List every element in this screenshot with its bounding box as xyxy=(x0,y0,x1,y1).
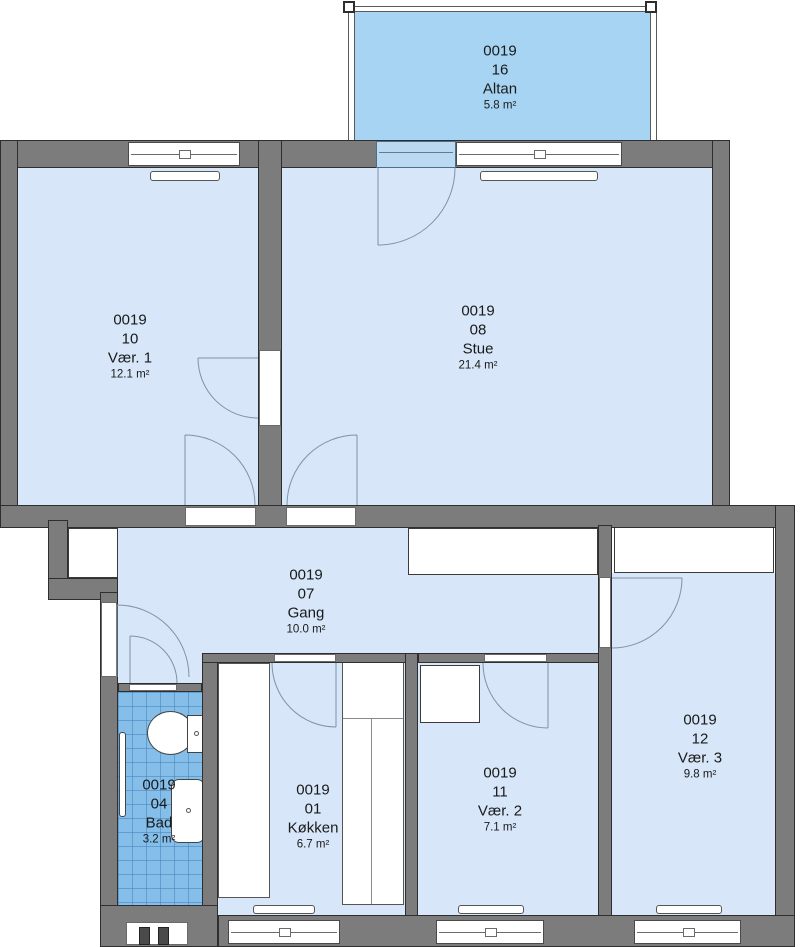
room-name: Vær. 2 xyxy=(478,802,522,821)
wall xyxy=(712,140,730,528)
balcony-railing xyxy=(350,6,655,12)
towel-rail xyxy=(119,732,126,817)
room-area: 21.4 m² xyxy=(459,359,498,373)
room-number: 04 xyxy=(142,795,175,814)
room-unit: 0019 xyxy=(459,303,498,322)
wall xyxy=(0,505,795,528)
room-label-gang: 0019 07 Gang 10.0 m² xyxy=(287,567,326,638)
wardrobe xyxy=(420,665,480,723)
room-area: 5.8 m² xyxy=(483,99,517,113)
toilet-button xyxy=(194,731,199,736)
door-opening-vaer1-gang xyxy=(185,507,256,526)
room-unit: 0019 xyxy=(478,765,522,784)
room-label-vaer3: 0019 12 Vær. 3 9.8 m² xyxy=(678,712,722,783)
wardrobe xyxy=(614,527,774,573)
door-opening-vaer2 xyxy=(484,654,547,662)
door-opening-bad xyxy=(129,684,177,691)
room-gang-floor xyxy=(408,575,598,655)
room-number: 08 xyxy=(459,321,498,340)
window-vaer3 xyxy=(634,920,741,944)
door-opening-vaer1-stue xyxy=(259,350,281,426)
room-area: 7.1 m² xyxy=(478,821,522,835)
room-label-koekken: 0019 01 Køkken 6.7 m² xyxy=(288,782,339,853)
radiator xyxy=(656,905,722,914)
entry-door-opening xyxy=(101,602,117,677)
shaft-post xyxy=(158,927,169,945)
room-name: Køkken xyxy=(288,819,339,838)
room-name: Bad xyxy=(142,814,175,833)
room-unit: 0019 xyxy=(288,782,339,801)
wall xyxy=(405,653,418,920)
room-label-bad: 0019 04 Bad 3.2 m² xyxy=(142,777,175,848)
balcony-railing xyxy=(650,6,657,142)
room-name: Gang xyxy=(287,604,326,623)
window-vaer1 xyxy=(128,142,240,166)
room-area: 9.8 m² xyxy=(678,768,722,782)
window-koekken xyxy=(228,920,340,944)
room-gang-floor xyxy=(118,528,408,655)
room-number: 01 xyxy=(288,800,339,819)
counter-divider xyxy=(371,718,372,904)
sink-drain xyxy=(186,808,191,813)
room-number: 07 xyxy=(287,585,326,604)
room-name: Stue xyxy=(459,340,498,359)
balcony-door xyxy=(376,141,456,168)
balcony-post xyxy=(645,1,657,13)
wardrobe xyxy=(408,528,598,575)
balcony-post xyxy=(343,1,355,13)
room-label-vaer2: 0019 11 Vær. 2 7.1 m² xyxy=(478,765,522,836)
wall xyxy=(202,655,218,920)
counter-divider xyxy=(343,718,403,719)
radiator xyxy=(480,171,598,181)
sink xyxy=(171,779,205,843)
balcony-railing xyxy=(348,6,355,142)
wall xyxy=(0,140,18,528)
room-area: 3.2 m² xyxy=(142,833,175,847)
room-name: Altan xyxy=(483,80,517,99)
kitchen-counter-right xyxy=(342,660,404,905)
wall xyxy=(775,505,795,920)
window-stue xyxy=(456,142,622,166)
window-vaer2 xyxy=(436,920,544,944)
room-name: Vær. 1 xyxy=(108,349,152,368)
room-number: 10 xyxy=(108,330,152,349)
room-number: 16 xyxy=(483,61,517,80)
door-opening-koekken xyxy=(274,654,336,662)
entry-niche xyxy=(68,528,118,578)
door-opening-vaer3 xyxy=(599,577,611,648)
kitchen-counter-left xyxy=(218,663,270,898)
radiator xyxy=(458,905,524,914)
room-area: 6.7 m² xyxy=(288,838,339,852)
radiator xyxy=(253,905,315,914)
room-unit: 0019 xyxy=(483,43,517,62)
room-unit: 0019 xyxy=(287,567,326,586)
room-label-vaer1: 0019 10 Vær. 1 12.1 m² xyxy=(108,312,152,383)
room-number: 12 xyxy=(678,730,722,749)
room-unit: 0019 xyxy=(142,777,175,796)
radiator xyxy=(150,171,220,181)
shaft-post xyxy=(139,927,150,945)
room-label-altan: 0019 16 Altan 5.8 m² xyxy=(483,43,517,114)
floor-plan: 0019 16 Altan 5.8 m² 0019 10 Vær. 1 12.1… xyxy=(0,0,800,947)
room-area: 10.0 m² xyxy=(287,623,326,637)
room-name: Vær. 3 xyxy=(678,749,722,768)
wall xyxy=(258,140,282,528)
service-shaft xyxy=(126,922,188,945)
room-number: 11 xyxy=(478,783,522,802)
door-opening-stue-gang xyxy=(286,507,356,526)
room-unit: 0019 xyxy=(678,712,722,731)
room-area: 12.1 m² xyxy=(108,368,152,382)
room-unit: 0019 xyxy=(108,312,152,331)
room-label-stue: 0019 08 Stue 21.4 m² xyxy=(459,303,498,374)
